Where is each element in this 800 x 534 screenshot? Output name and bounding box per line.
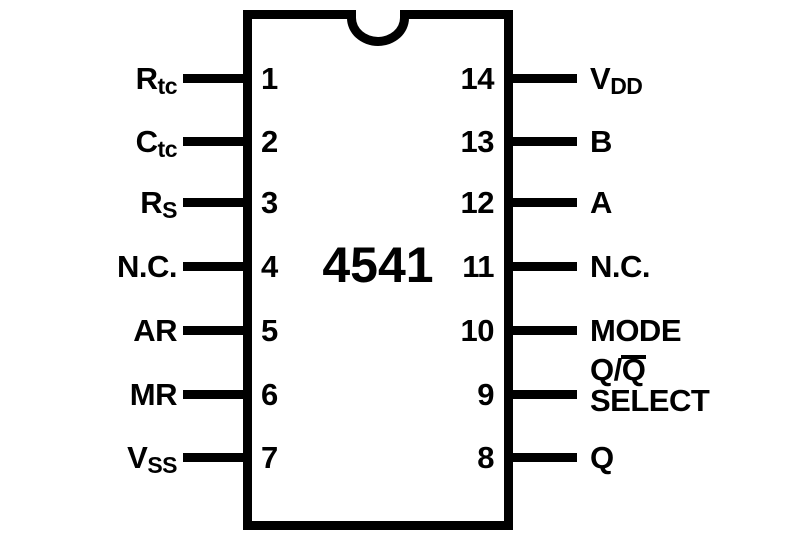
pin-12-number: 12 (444, 186, 494, 220)
pin-12-label: A (590, 186, 612, 220)
pin-2-label: Ctc (40, 125, 177, 159)
pin-8-label: Q (590, 441, 614, 475)
pin-7-label: VSS (40, 441, 177, 475)
pin-14-label: VDD (590, 62, 642, 96)
pin-7-number: 7 (261, 441, 278, 475)
pin-11-lead (506, 262, 577, 271)
pin-2-lead (183, 137, 247, 146)
pin-13-lead (506, 137, 577, 146)
pin-10-label: MODE (590, 314, 681, 348)
pin-8-lead (506, 453, 577, 462)
pin-4-label: N.C. (40, 250, 177, 284)
pin-10-lead (506, 326, 577, 335)
pin-3-label: RS (40, 186, 177, 220)
pin-8-number: 8 (444, 441, 494, 475)
pin-6-label: MR (40, 378, 177, 412)
ic-pinout-diagram: 4541 Rtc 1 Ctc 2 RS 3 N.C. 4 AR 5 MR 6 V… (0, 0, 800, 534)
pin-6-lead (183, 390, 247, 399)
pin-2-number: 2 (261, 125, 278, 159)
pin-1-label: Rtc (40, 62, 177, 96)
pin-9-number: 9 (444, 378, 494, 412)
pin-3-number: 3 (261, 186, 278, 220)
pin-1-lead (183, 74, 247, 83)
pin-4-number: 4 (261, 250, 278, 284)
pin-5-lead (183, 326, 247, 335)
pin-11-number: 11 (444, 250, 494, 284)
pin-9-label: Q/Q SELECT (590, 354, 709, 416)
q-bar-overline: Q (622, 354, 646, 385)
pin-9-label-line2: SELECT (590, 385, 709, 416)
pin-5-number: 5 (261, 314, 278, 348)
chip-notch-icon (347, 10, 409, 46)
pin-1-number: 1 (261, 62, 278, 96)
pin-13-number: 13 (444, 125, 494, 159)
pin-9-lead (506, 390, 577, 399)
pin-5-label: AR (40, 314, 177, 348)
pin-7-lead (183, 453, 247, 462)
pin-13-label: B (590, 125, 612, 159)
pin-14-number: 14 (444, 62, 494, 96)
pin-4-lead (183, 262, 247, 271)
pin-14-lead (506, 74, 577, 83)
pin-11-label: N.C. (590, 250, 650, 284)
pin-6-number: 6 (261, 378, 278, 412)
pin-10-number: 10 (444, 314, 494, 348)
pin-12-lead (506, 198, 577, 207)
pin-3-lead (183, 198, 247, 207)
pin-9-label-line1: Q/Q (590, 354, 709, 385)
